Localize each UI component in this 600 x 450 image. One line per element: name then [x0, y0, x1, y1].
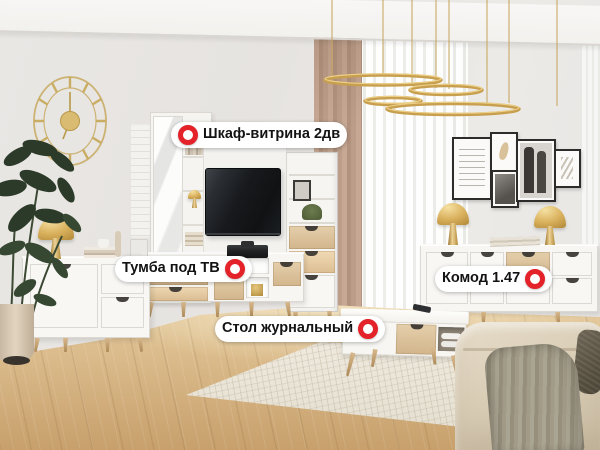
potted-plant: [0, 126, 100, 331]
living-room-photo: Шкаф-витрина 2дв Тумба под ТВ Комод 1.47…: [0, 0, 600, 450]
tvstand-drawer-oak: [273, 262, 301, 286]
tvstand-leg: [180, 302, 187, 317]
product-label-text: Комод 1.47: [442, 270, 520, 287]
frame-text-print: [452, 137, 492, 200]
shelf-board: [289, 174, 335, 176]
drawer-handle-notch: [566, 252, 579, 257]
shelf-board: [289, 222, 335, 224]
tv-screen: [205, 168, 281, 236]
product-label-coffee-table[interactable]: Стол журнальный: [215, 316, 385, 342]
drawer-handle-notch: [305, 226, 318, 231]
product-label-text: Стол журнальный: [222, 320, 353, 337]
shelf-plant: [302, 204, 322, 220]
chest-drawer: [552, 278, 592, 304]
drawer-handle-notch: [169, 287, 182, 292]
drawer-handle-notch: [566, 278, 579, 283]
drawer-handle-notch: [522, 252, 535, 257]
flower-sprig: [498, 141, 510, 160]
table-drawer-oak: [396, 324, 437, 355]
media-player-top: [241, 241, 254, 247]
coffee-table: [337, 302, 473, 383]
hotspot-marker-icon: [178, 125, 198, 145]
drawer-handle-notch: [305, 275, 318, 280]
plant-pot-base: [3, 356, 30, 365]
sketch-lines: [561, 157, 573, 179]
plant-pot: [0, 304, 34, 360]
frame-flower-print: [490, 132, 518, 172]
drawer-handle-notch: [481, 252, 494, 257]
table-leg: [344, 352, 357, 377]
gold-decor: [251, 284, 263, 296]
ring-chandelier: [290, 0, 570, 125]
product-label-tv-stand[interactable]: Тумба под ТВ: [115, 256, 252, 282]
figure-right: [537, 151, 546, 193]
print-text-lines: [459, 149, 485, 188]
hotspot-marker-icon: [225, 259, 245, 279]
tvstand-open-shelf: [246, 277, 269, 298]
tv-bottom-bezel: [206, 233, 280, 235]
sideboard-drawer: [101, 297, 144, 328]
drawer-handle-notch: [441, 252, 454, 257]
product-label-chest[interactable]: Комод 1.47: [435, 266, 552, 292]
drawer-handle-notch: [305, 251, 318, 256]
drawer-handle-notch: [410, 324, 423, 329]
drawer-handle-notch: [116, 297, 129, 302]
shelf-photo-frame: [293, 180, 311, 201]
right-window-sheer: [582, 26, 600, 244]
drawer-handle-notch: [280, 262, 293, 267]
frame-figure-print: [516, 139, 556, 202]
figure-left: [524, 147, 534, 193]
decor-vase: [115, 231, 121, 257]
chest-decor-books: [490, 236, 540, 247]
cabinet-mini-lamp: [188, 190, 201, 199]
product-label-text: Тумба под ТВ: [122, 260, 220, 277]
throw-blanket: [483, 341, 584, 450]
chest-drawer: [552, 252, 592, 276]
tvstand-drawer-oak: [144, 287, 208, 301]
frame-photo-small: [491, 170, 519, 208]
product-label-cabinet[interactable]: Шкаф-витрина 2дв: [171, 122, 347, 148]
cabinet-mini-lamp-stem: [192, 198, 197, 208]
photo-bw: [495, 174, 515, 204]
hotspot-marker-icon: [525, 269, 545, 289]
product-label-text: Шкаф-витрина 2дв: [203, 126, 340, 143]
hotspot-marker-icon: [358, 319, 378, 339]
shelf-drawer-oak: [289, 226, 335, 249]
frame-sketch-print: [554, 149, 581, 188]
